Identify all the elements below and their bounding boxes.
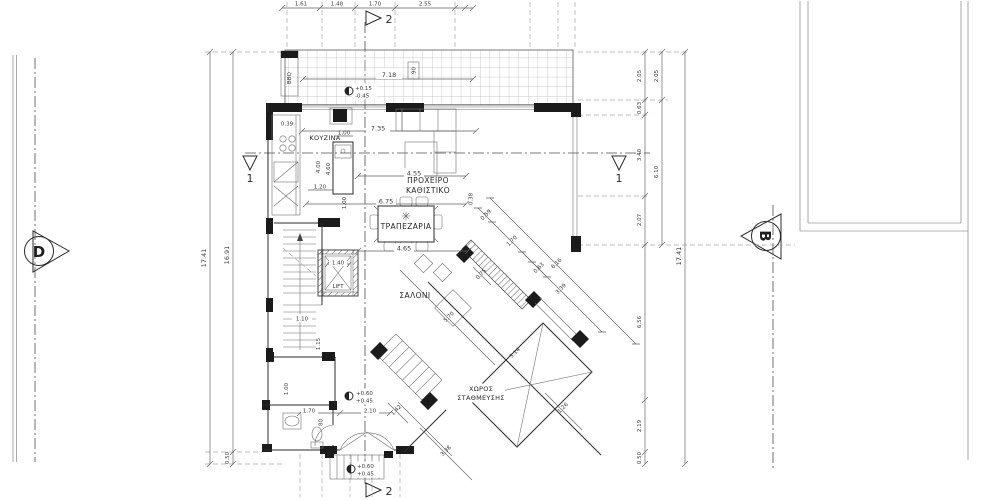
section-1-left-label: 1 (247, 172, 254, 185)
dim-dining-465: 4.65 (397, 245, 411, 253)
dim-wc-1: 1.70 (303, 409, 316, 415)
section-2-bottom-label: 2 (386, 485, 393, 498)
left-dimension-chains: 17.41 16.91 0.50 (200, 49, 236, 467)
parking-label-1: ΧΩΡΟΣ (469, 385, 493, 393)
dim-kitchen-460: 4.60 (326, 162, 332, 175)
floor-plan-svg: D B 2 2 1 1 (0, 0, 1000, 500)
dim-top-3: 1.70 (369, 2, 382, 8)
adjacent-sheet-panel (800, 1, 968, 460)
right-dimension-chains: 2.05 0.63 3.40 2.07 6.56 2.19 0.50 2.05 … (637, 49, 688, 467)
elevation-letter-d: D (33, 243, 45, 261)
wc (262, 357, 337, 454)
dim-living-width: 7.35 (371, 125, 385, 133)
level-entry-lower: +0.45 (357, 472, 374, 478)
dim-rb-610: 6.10 (654, 165, 660, 178)
dim-ra-205: 2.05 (637, 69, 643, 82)
dim-kitchen-039: 0.39 (281, 122, 294, 128)
dim-garage-338: 3.38 (440, 444, 453, 457)
dim-island-top: 1.00 (338, 131, 351, 137)
dim-diag-339: 3.39 (555, 282, 568, 295)
elevation-marker-D: D (25, 58, 70, 462)
dim-top-4: 2.55 (419, 2, 432, 8)
dim-stair-1: 1.10 (296, 317, 309, 323)
dim-sitting-455: 4.55 (407, 170, 421, 178)
section-2-top-label: 2 (386, 13, 393, 26)
dim-sitting-038: 0.38 (469, 192, 475, 205)
dim-rb-205: 2.05 (654, 69, 660, 82)
level-veranda-lower: -0.45 (355, 94, 370, 100)
dim-kitchen-400: 4.00 (316, 160, 322, 173)
dim-diag-059: 0.59 (480, 208, 493, 221)
kitchen-island (333, 142, 353, 194)
diagonal-dimensions: 0.59 1.70 0.63 6.16 3.39 5.70 3.14 0.75 … (388, 198, 640, 480)
dim-garage-570: 5.70 (443, 310, 456, 323)
dim-top-2: 1.48 (331, 2, 344, 8)
dim-ra-340: 3.40 (637, 148, 643, 161)
dim-diag-616: 6.16 (550, 257, 563, 270)
elevation-marker-B: B (741, 205, 781, 468)
dim-top-1: 1.61 (295, 2, 307, 8)
dim-diag-063: 0.63 (533, 261, 546, 274)
dim-lift-width: 1.40 (332, 261, 345, 267)
elevation-letter-b: B (756, 230, 774, 241)
kitchen-label: ΚΟΥΖΙΝΑ (309, 134, 340, 142)
dim-left-1691: 16.91 (223, 246, 231, 265)
living-room: ΣΑΛΟΝΙ (399, 254, 471, 326)
dim-right-total: 17.41 (675, 247, 683, 266)
sitting-label-2: ΚΑΘΙΣΤΙΚΟ (406, 186, 450, 195)
dim-ra-050: 0.50 (637, 451, 643, 464)
level-marker-entry: +0.60 +0.45 (347, 462, 380, 478)
dim-ra-656: 6.56 (637, 315, 643, 328)
veranda: BBQ 90 7.18 +0.15 -0.45 (281, 50, 573, 105)
dim-stair-2: 1.15 (316, 337, 322, 350)
level-entry-upper: +0.60 (357, 464, 374, 470)
window-tag: 90 (412, 67, 418, 74)
property-boundary (13, 55, 17, 462)
dining-label: ΤΡΑΠΕΖΑΡΙΑ (380, 222, 432, 231)
dim-garage-126: 1.26 (557, 401, 570, 414)
floor-plan-sheet: D B 2 2 1 1 (0, 0, 1000, 500)
bbq-label: BBQ (287, 71, 293, 84)
dim-left-total: 17.41 (200, 249, 208, 268)
dim-ra-063: 0.63 (637, 101, 643, 114)
lift-label: LIFT (332, 284, 344, 290)
dim-wc-2: 80 (319, 419, 325, 426)
dim-kitchen-120: 1.20 (314, 185, 327, 191)
dim-garage-142: 1.42 (390, 404, 403, 417)
casual-sitting: ΠΡΟΧΕΙΡΟ ΚΑΘΙΣΤΙΚΟ (396, 109, 456, 195)
level-hall-upper: +0.60 (356, 391, 373, 397)
dim-left-050: 0.50 (225, 451, 231, 464)
dim-ra-207: 2.07 (637, 213, 643, 226)
dim-stair-3: 1.00 (284, 382, 290, 395)
dim-garage-314: 3.14 (509, 346, 522, 359)
dim-veranda-width: 7.18 (382, 71, 396, 79)
dim-diag-170: 1.70 (506, 234, 519, 247)
entry-steps: +0.60 +0.45 (325, 451, 393, 479)
top-dimension-chain: 1.61 1.48 1.70 2.55 (279, 2, 476, 12)
garage-ramp (370, 334, 442, 410)
dim-dining-675: 6.75 (379, 198, 393, 206)
level-veranda-upper: +0.15 (355, 86, 372, 92)
entry-hall: 1.70 80 2.10 +0.60 +0.45 (297, 389, 394, 451)
staircase: 1.10 1.15 1.00 (266, 218, 340, 395)
dim-ra-219: 2.19 (637, 419, 643, 432)
level-marker-hall: +0.60 +0.45 (345, 389, 379, 405)
section-1-right-label: 1 (616, 172, 623, 185)
level-hall-lower: +0.45 (356, 399, 373, 405)
dim-hall: 2.10 (364, 409, 377, 415)
dim-island-side: 1.00 (342, 196, 348, 209)
parking-label-2: ΣΤΑΘΜΕΥΣΗΣ (457, 394, 504, 402)
lift: 1.40 LIFT (318, 250, 358, 296)
